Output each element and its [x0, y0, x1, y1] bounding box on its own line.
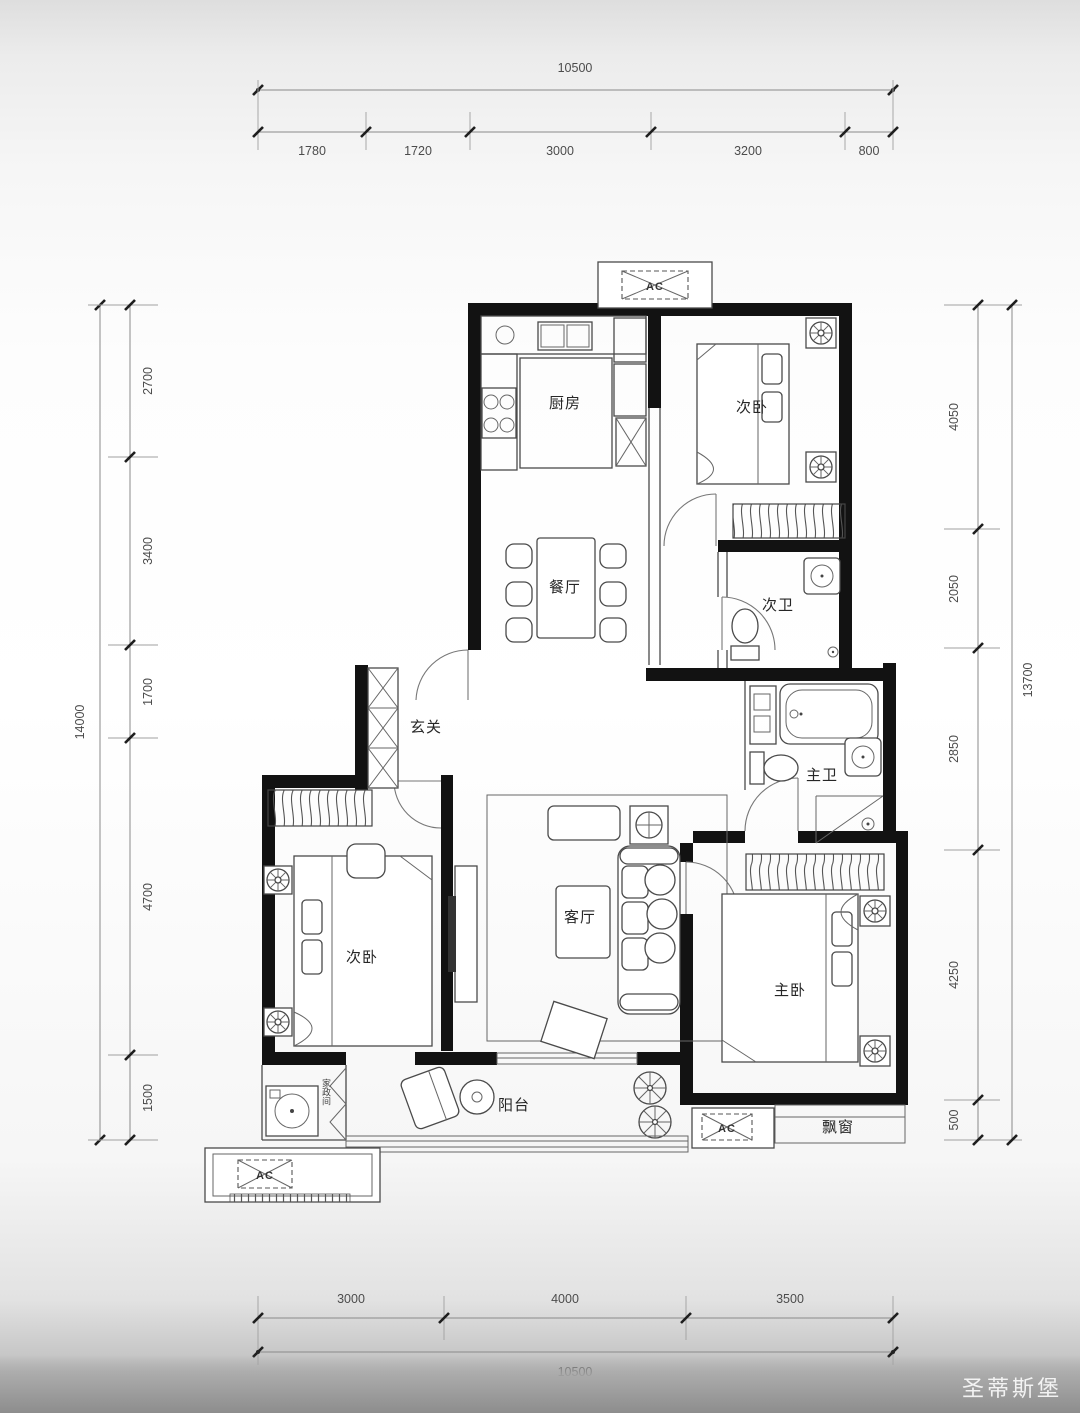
dim-right-seg-1: 4050 [947, 403, 961, 431]
room-label-bay-window: 飘窗 [822, 1118, 854, 1136]
room-label-balcony: 阳台 [498, 1097, 530, 1114]
dim-left-total: 14000 [73, 705, 87, 740]
bay-window: 飘窗 [775, 1105, 905, 1143]
room-label-bath-top: 次卫 [762, 597, 794, 614]
room-label-bedroom-left: 次卧 [346, 949, 378, 966]
room-label-bedroom-master: 主卧 [774, 982, 806, 999]
room-label-living: 客厅 [564, 909, 596, 926]
dim-top-seg-4: 3200 [734, 144, 762, 158]
utility-fixtures: 家政间 [266, 1068, 346, 1140]
dimension-chain-right: 4050 2050 2850 4250 500 13700 [944, 300, 1035, 1145]
room-label-entry: 玄关 [410, 719, 442, 736]
bedroom-master-fixtures: 主卧 [722, 854, 890, 1066]
floor-plan-svg: 10500 1780 1720 3000 3200 800 3000 4000 … [0, 0, 1080, 1413]
dim-top-seg-1: 1780 [298, 144, 326, 158]
dim-left-seg-4: 4700 [141, 883, 155, 911]
dim-left-seg-3: 1700 [141, 678, 155, 706]
dim-right-seg-2: 2050 [947, 575, 961, 603]
dim-top-seg-3: 3000 [546, 144, 574, 158]
dimension-chain-top: 10500 1780 1720 3000 3200 800 [253, 61, 898, 158]
room-label-kitchen: 厨房 [549, 395, 581, 412]
dim-right-seg-3: 2850 [947, 735, 961, 763]
dimension-chain-left: 14000 2700 3400 1700 4700 1500 [73, 300, 158, 1145]
dim-left-seg-5: 1500 [141, 1084, 155, 1112]
ac-label-bottom-left: AC [256, 1170, 274, 1182]
dim-bottom-seg-1: 3000 [337, 1292, 365, 1306]
kitchen-fixtures: 厨房 [481, 316, 646, 470]
ac-label-bottom-middle: AC [718, 1123, 736, 1135]
balcony-fixtures: 阳台 [346, 1066, 688, 1152]
bath-top-fixtures: 次卫 [731, 558, 840, 660]
room-label-bedroom-top: 次卧 [736, 399, 768, 416]
dining-fixtures: 餐厅 [506, 538, 626, 642]
dim-left-seg-2: 3400 [141, 537, 155, 565]
room-label-bath-master: 主卫 [806, 767, 838, 784]
room-label-utility: 家政间 [321, 1077, 331, 1106]
dim-top-total: 10500 [558, 61, 593, 75]
dim-right-total: 13700 [1021, 663, 1035, 698]
bottom-gradient-bar [0, 1355, 1080, 1413]
bedroom-left-fixtures: 次卧 [264, 790, 432, 1046]
ac-unit-bottom-middle: AC [692, 1108, 774, 1148]
ac-label-top: AC [646, 281, 664, 293]
dim-top-seg-2: 1720 [404, 144, 432, 158]
ac-unit-bottom-left: AC [205, 1148, 380, 1202]
room-label-dining: 餐厅 [549, 579, 581, 596]
bath-master-fixtures: 主卫 [750, 684, 883, 843]
dim-left-seg-1: 2700 [141, 367, 155, 395]
dim-right-seg-5: 500 [947, 1110, 961, 1131]
watermark-text: 圣蒂斯堡 [962, 1371, 1062, 1403]
ac-unit-top: AC [598, 262, 712, 308]
dim-bottom-seg-2: 4000 [551, 1292, 579, 1306]
dim-top-seg-5: 800 [859, 144, 880, 158]
dim-bottom-seg-3: 3500 [776, 1292, 804, 1306]
dim-right-seg-4: 4250 [947, 961, 961, 989]
bedroom-top-fixtures: 次卧 [697, 318, 845, 538]
